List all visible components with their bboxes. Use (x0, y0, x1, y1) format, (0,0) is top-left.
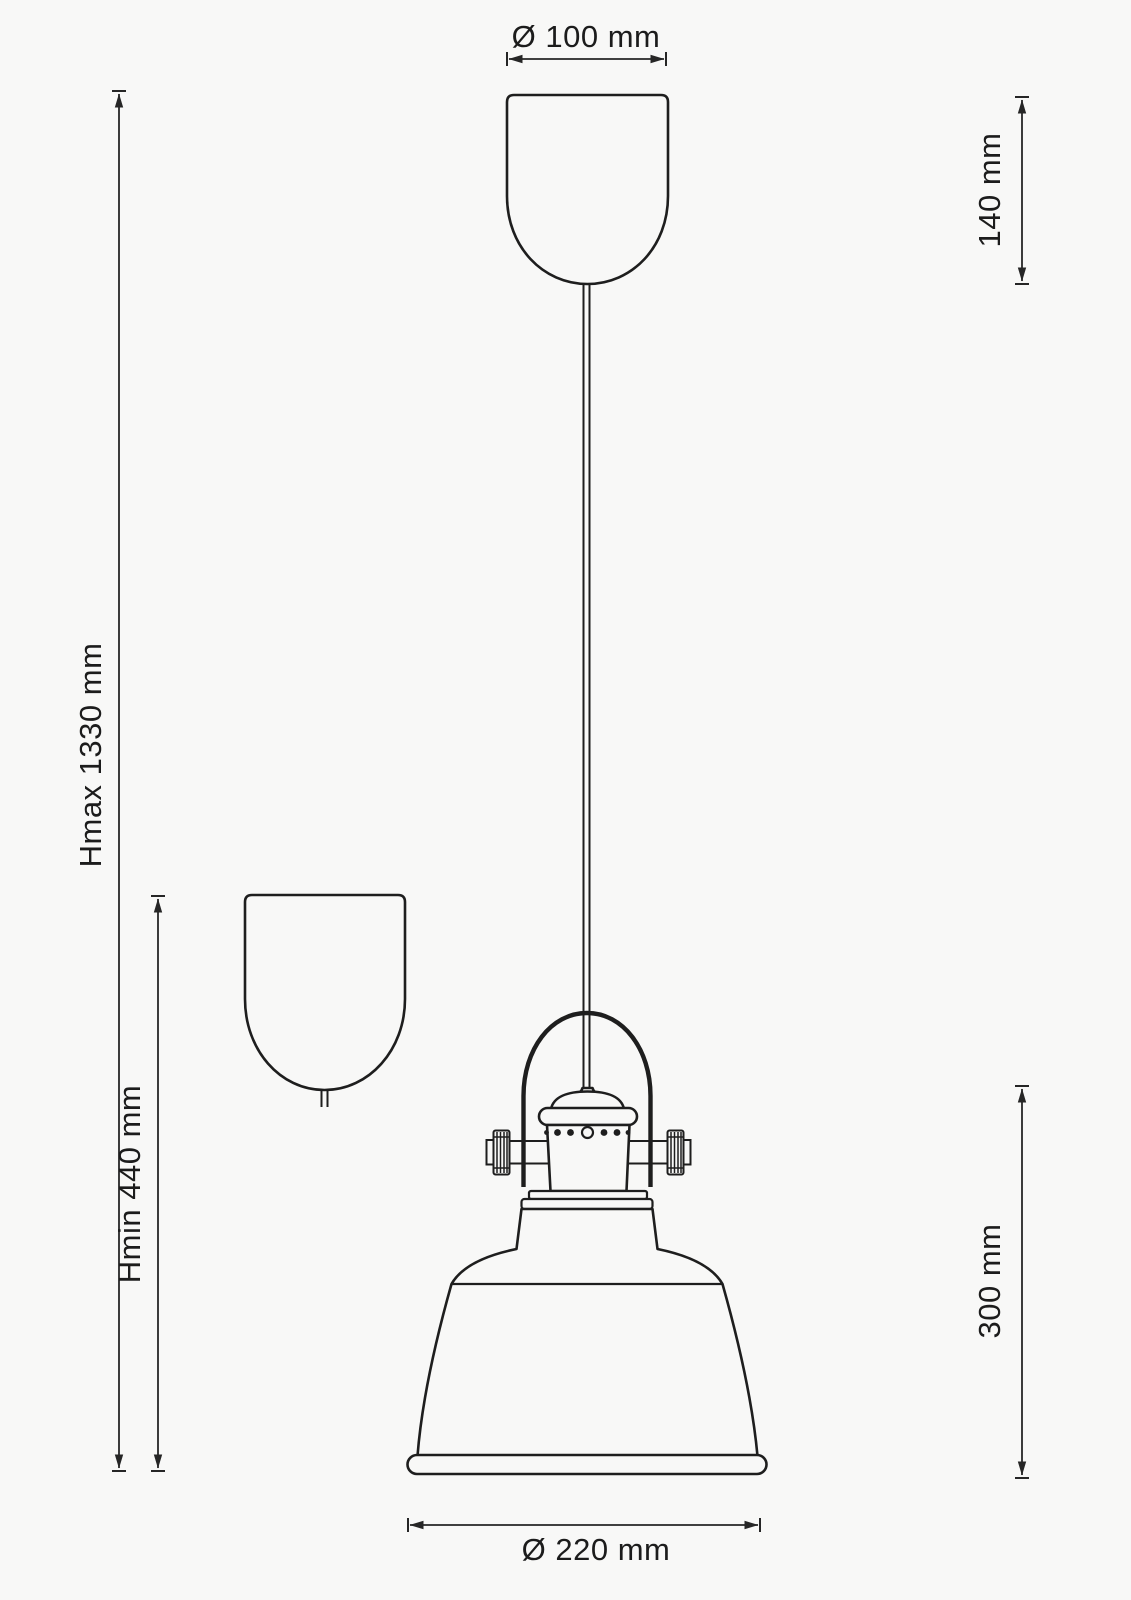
dimension-shade-height: 300 mm (972, 1086, 1029, 1478)
dimension-canopy-diameter: Ø 100 mm (507, 19, 666, 66)
dimension-height-min: Hmin 440 mm (112, 896, 165, 1471)
suspension-cable (584, 283, 590, 1089)
neck-plate-lower (522, 1199, 653, 1209)
holder-dome-cap (551, 1092, 624, 1110)
holder-collar-band (539, 1108, 637, 1125)
dimension-canopy-height: 140 mm (972, 97, 1029, 284)
lamp-holder (487, 1088, 691, 1209)
pendant-lamp-dimension-drawing: Ø 100 mm 140 mm Hmax 1330 mm Hmin 440 mm (0, 0, 1131, 1600)
adjustment-knob-right (628, 1131, 691, 1175)
height-min-label: Hmin 440 mm (112, 1085, 147, 1283)
lamp-shade (408, 1209, 767, 1474)
shade-diameter-label: Ø 220 mm (522, 1532, 671, 1567)
dimension-shade-diameter: Ø 220 mm (408, 1518, 760, 1567)
canopy-height-label: 140 mm (972, 133, 1007, 248)
neck-plate-upper (529, 1191, 647, 1199)
technical-drawing-canvas: Ø 100 mm 140 mm Hmax 1330 mm Hmin 440 mm (0, 0, 1131, 1600)
canopy-diameter-label: Ø 100 mm (512, 19, 661, 54)
canopy-detail-outline (245, 895, 405, 1090)
ceiling-canopy-outline (507, 95, 668, 284)
shade-body (418, 1209, 758, 1456)
height-max-label: Hmax 1330 mm (73, 643, 108, 868)
adjustment-knob-left (487, 1131, 549, 1175)
shade-height-label: 300 mm (972, 1224, 1007, 1339)
shade-rim (408, 1455, 767, 1474)
canopy-detail-view (245, 895, 405, 1107)
